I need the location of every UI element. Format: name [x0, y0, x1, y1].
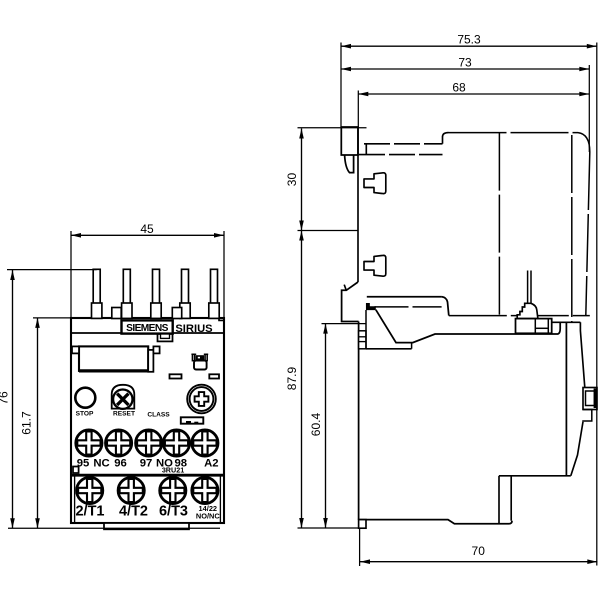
svg-text:75.3: 75.3 [457, 33, 481, 47]
svg-text:45: 45 [140, 222, 154, 236]
svg-text:68: 68 [452, 80, 466, 94]
svg-text:3RU21: 3RU21 [162, 466, 184, 475]
svg-text:A2: A2 [204, 457, 218, 469]
svg-text:CLASS: CLASS [147, 412, 170, 419]
svg-text:STOP: STOP [76, 411, 94, 418]
svg-text:60.4: 60.4 [309, 412, 323, 436]
svg-text:NO/NC: NO/NC [196, 511, 220, 520]
svg-text:70: 70 [472, 544, 486, 558]
svg-text:30: 30 [285, 173, 299, 187]
svg-text:96: 96 [114, 457, 127, 469]
svg-text:SIRIUS: SIRIUS [175, 323, 213, 335]
svg-text:SIEMENS: SIEMENS [126, 323, 168, 334]
svg-text:6/T3: 6/T3 [159, 504, 188, 520]
svg-text:RESET: RESET [113, 411, 135, 418]
svg-text:76: 76 [0, 391, 11, 405]
svg-text:61.7: 61.7 [20, 411, 34, 435]
svg-text:NC: NC [93, 457, 109, 469]
svg-text:97: 97 [140, 457, 153, 469]
svg-text:4/T2: 4/T2 [119, 504, 148, 520]
svg-text:73: 73 [458, 55, 472, 69]
svg-text:87.9: 87.9 [285, 366, 299, 390]
svg-text:2/T1: 2/T1 [75, 504, 104, 520]
